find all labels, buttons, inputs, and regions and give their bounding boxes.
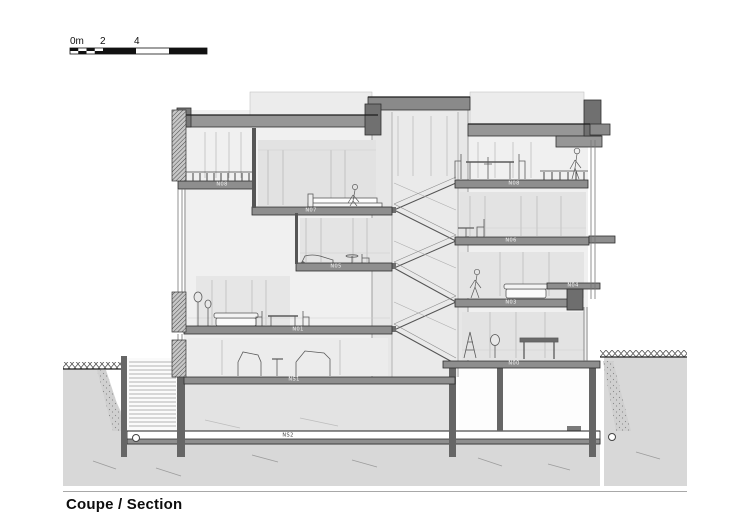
floor-label-n04: N04 <box>567 284 578 289</box>
floor-label-n07: N07 <box>305 209 316 214</box>
section-drawing <box>0 0 750 530</box>
slab-ns1 <box>184 377 455 384</box>
roof-right <box>468 124 590 136</box>
ground-hatch-right <box>600 350 687 357</box>
floor-label-n08-right: N08 <box>508 182 519 187</box>
title-separator <box>63 491 687 492</box>
drawing-title: Coupe / Section <box>66 496 182 513</box>
floor-label-n03: N03 <box>505 301 516 306</box>
slab-n01 <box>184 326 392 334</box>
drain-pipe-left <box>133 435 140 442</box>
floor-label-n05: N05 <box>330 265 341 270</box>
floor-label-n00: N00 <box>508 362 519 367</box>
floor-label-ns1: NS1 <box>288 378 299 383</box>
scale-label-2: 2 <box>100 36 106 47</box>
floor-label-ns2: NS2 <box>282 434 293 439</box>
floor-label-n01: N01 <box>292 328 303 333</box>
roof-left <box>176 115 378 127</box>
scale-bar <box>70 48 207 54</box>
slab-n07 <box>252 207 392 215</box>
retaining-wall <box>121 356 127 457</box>
floor-label-n06: N06 <box>505 239 516 244</box>
drawing-sheet: N08 N07 N05 N01 NS1 NS2 N08 N06 N04 N03 … <box>0 0 750 530</box>
slab-n00 <box>443 361 600 368</box>
floor-label-n08-left: N08 <box>216 183 227 188</box>
slab-ns2 <box>127 431 600 444</box>
exterior-stair <box>127 358 177 431</box>
slab-n08-right <box>455 180 588 188</box>
entrance-step-block <box>567 289 583 310</box>
slab-n05 <box>296 263 392 271</box>
roof-tower <box>368 97 470 110</box>
drain-pipe-right <box>609 434 616 441</box>
slab-n06-balcony <box>589 236 615 243</box>
scale-label-0m: 0m <box>70 36 84 47</box>
scale-label-4: 4 <box>134 36 140 47</box>
slab-n06 <box>455 237 589 245</box>
